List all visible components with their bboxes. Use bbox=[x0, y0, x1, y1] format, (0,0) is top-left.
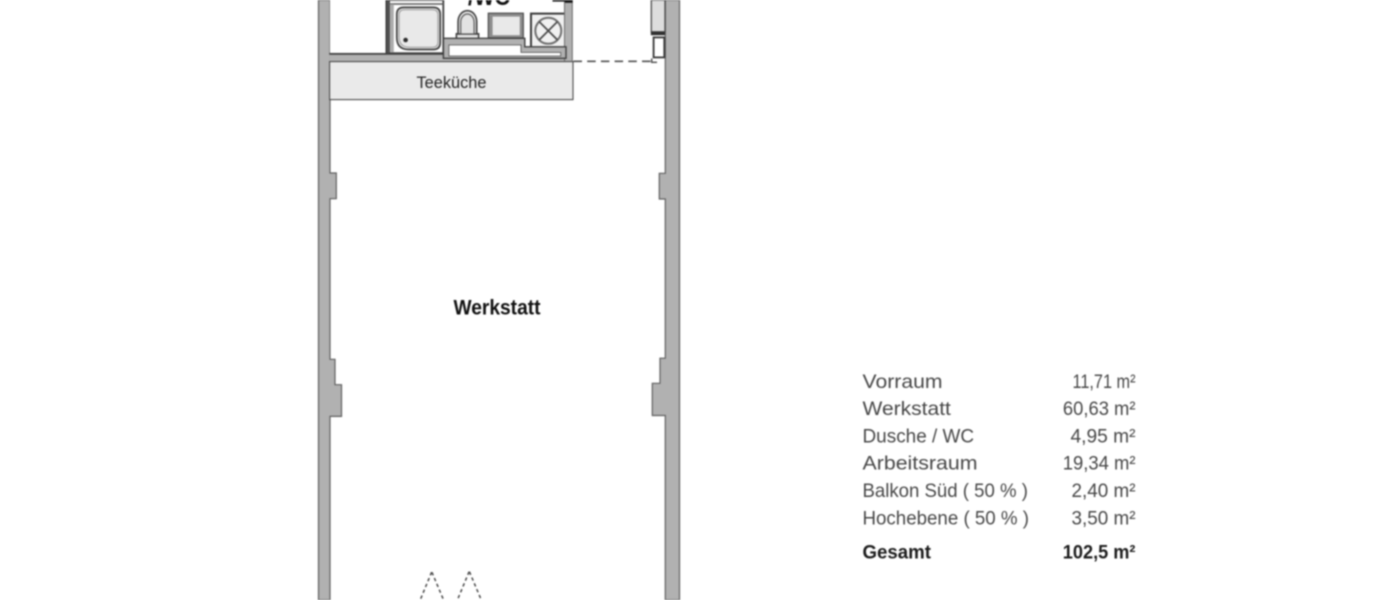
svg-text:Vorraum: Vorraum bbox=[863, 371, 943, 393]
svg-text:60,63 m²: 60,63 m² bbox=[1063, 398, 1136, 420]
svg-text:2,40 m²: 2,40 m² bbox=[1072, 480, 1136, 502]
svg-text:4,95 m²: 4,95 m² bbox=[1071, 425, 1136, 447]
svg-text:Teeküche: Teeküche bbox=[417, 74, 487, 92]
svg-text:Werkstatt: Werkstatt bbox=[454, 297, 541, 320]
svg-text:3,50 m²: 3,50 m² bbox=[1072, 507, 1136, 529]
svg-text:Arbeitsraum: Arbeitsraum bbox=[863, 453, 978, 475]
svg-text:11,71 m²: 11,71 m² bbox=[1073, 371, 1136, 393]
svg-text:Werkstatt: Werkstatt bbox=[863, 398, 952, 420]
svg-text:19,34 m²: 19,34 m² bbox=[1063, 453, 1136, 475]
svg-text:Gesamt: Gesamt bbox=[863, 542, 932, 564]
svg-text:/WC: /WC bbox=[468, 0, 510, 11]
svg-text:Hochebene ( 50 % ): Hochebene ( 50 % ) bbox=[863, 507, 1030, 529]
svg-text:102,5 m²: 102,5 m² bbox=[1063, 542, 1136, 564]
svg-text:Dusche / WC: Dusche / WC bbox=[863, 425, 975, 447]
svg-text:Balkon Süd ( 50 % ): Balkon Süd ( 50 % ) bbox=[863, 480, 1028, 502]
